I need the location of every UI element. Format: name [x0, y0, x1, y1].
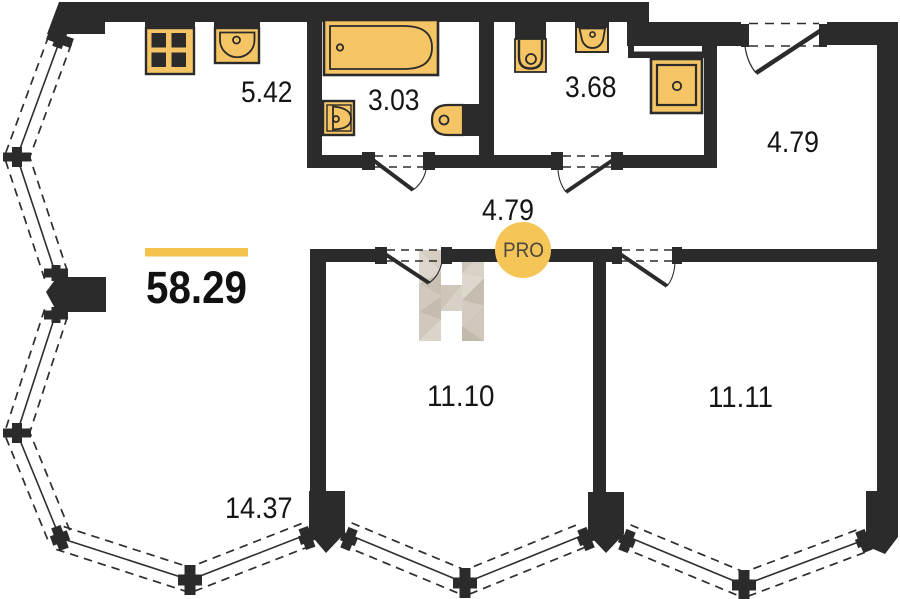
svg-text:PRO: PRO [503, 239, 544, 262]
svg-text:4.79: 4.79 [767, 126, 819, 159]
svg-text:14.37: 14.37 [225, 492, 293, 525]
svg-text:5.42: 5.42 [241, 76, 293, 109]
svg-text:3.68: 3.68 [565, 71, 617, 104]
svg-text:11.10: 11.10 [427, 380, 495, 413]
svg-text:11.11: 11.11 [708, 381, 773, 414]
svg-text:3.03: 3.03 [368, 84, 420, 117]
svg-text:4.79: 4.79 [482, 194, 534, 227]
svg-text:58.29: 58.29 [146, 262, 247, 313]
